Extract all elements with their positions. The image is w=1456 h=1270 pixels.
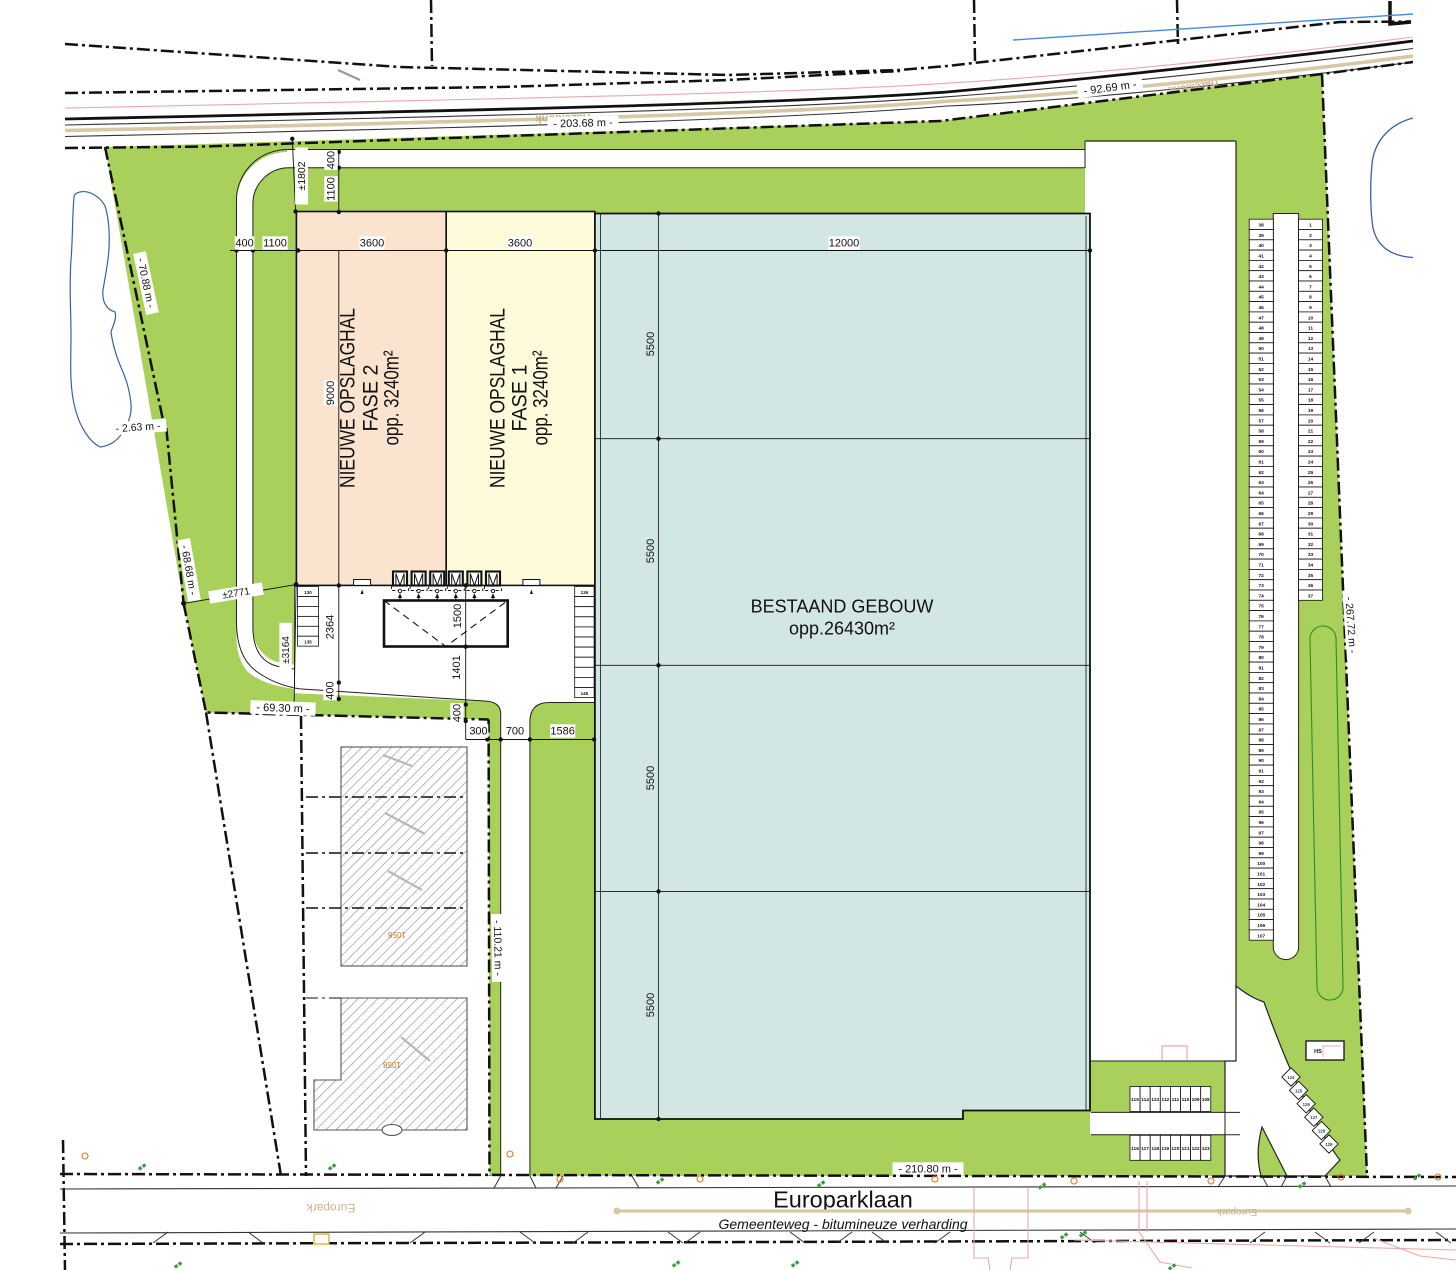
svg-text:85: 85 [1259,707,1265,713]
svg-text:119: 119 [1161,1146,1169,1152]
svg-text:opp.26430m²: opp.26430m² [789,619,895,639]
svg-text:122: 122 [1192,1146,1200,1152]
svg-text:opp. 3240m²: opp. 3240m² [380,351,404,446]
svg-text:33: 33 [1308,552,1314,558]
svg-text:91: 91 [1259,769,1265,775]
svg-text:5500: 5500 [645,332,657,356]
svg-text:48: 48 [1259,326,1265,332]
svg-text:25: 25 [1308,470,1314,476]
svg-text:50: 50 [1259,346,1265,352]
svg-text:21: 21 [1308,429,1314,435]
svg-text:59: 59 [1259,439,1265,445]
svg-text:88: 88 [1259,738,1265,744]
svg-text:125: 125 [1295,1088,1303,1093]
svg-text:135: 135 [304,640,312,645]
svg-text:49: 49 [1259,336,1265,342]
svg-text:7: 7 [1309,284,1312,290]
svg-text:1100: 1100 [263,238,287,250]
svg-text:103: 103 [1257,892,1265,898]
svg-text:77: 77 [1259,624,1265,630]
svg-text:13: 13 [1308,346,1314,352]
svg-text:BESTAAND GEBOUW: BESTAAND GEBOUW [751,597,934,617]
svg-text:16: 16 [1308,377,1314,383]
svg-text:37: 37 [1308,593,1314,599]
svg-text:70: 70 [1259,552,1265,558]
svg-text:27: 27 [1308,490,1314,496]
svg-text:Europarklaan: Europarklaan [773,1187,913,1213]
svg-text:82: 82 [1259,676,1265,682]
svg-text:124: 124 [1287,1075,1295,1080]
svg-text:92: 92 [1259,779,1265,785]
svg-text:107: 107 [1257,933,1265,939]
svg-text:300: 300 [469,726,487,738]
svg-text:96: 96 [1259,820,1265,826]
svg-text:127: 127 [1310,1115,1318,1120]
svg-text:400: 400 [325,681,337,699]
svg-text:26: 26 [1308,480,1314,486]
svg-text:129: 129 [1325,1142,1333,1147]
svg-text:81: 81 [1259,666,1265,672]
svg-text:3600: 3600 [360,238,384,250]
svg-text:121: 121 [1181,1146,1189,1152]
svg-text:8: 8 [1309,295,1312,301]
svg-text:12: 12 [1308,336,1314,342]
svg-text:120: 120 [1171,1146,1179,1152]
svg-text:2364: 2364 [325,615,337,639]
svg-text:5500: 5500 [645,766,657,790]
svg-text:40: 40 [1259,243,1265,249]
svg-text:1058: 1058 [388,930,406,939]
svg-text:78: 78 [1259,635,1265,641]
svg-text:110: 110 [1182,1097,1190,1103]
svg-text:115: 115 [1131,1097,1139,1103]
svg-text:44: 44 [1259,284,1265,290]
svg-text:5: 5 [1309,264,1312,270]
svg-text:opp. 3240m²: opp. 3240m² [529,351,553,446]
svg-text:53: 53 [1259,377,1265,383]
svg-text:63: 63 [1259,480,1265,486]
svg-text:86: 86 [1259,717,1265,723]
svg-text:90: 90 [1259,758,1265,764]
svg-text:51: 51 [1259,357,1265,363]
svg-text:Gemeenteweg - bitumineuze verh: Gemeenteweg - bitumineuze verharding [718,1216,967,1232]
svg-text:136: 136 [581,590,589,595]
svg-text:- 110.21 m -: - 110.21 m - [491,920,504,977]
svg-text:58: 58 [1259,429,1265,435]
svg-text:18: 18 [1308,398,1314,404]
svg-text:95: 95 [1259,810,1265,816]
svg-text:38: 38 [1259,223,1265,229]
svg-text:66: 66 [1259,511,1265,517]
svg-text:17: 17 [1308,387,1314,393]
svg-text:84: 84 [1259,696,1265,702]
svg-text:47: 47 [1259,315,1265,321]
svg-text:41: 41 [1259,254,1265,260]
svg-text:117: 117 [1141,1146,1149,1152]
svg-text:100: 100 [1257,861,1265,867]
svg-text:5500: 5500 [645,539,657,563]
svg-text:105: 105 [1257,913,1265,919]
svg-text:- 210.80 m -: - 210.80 m - [898,1164,958,1176]
svg-text:28: 28 [1308,501,1314,507]
svg-text:87: 87 [1259,727,1265,733]
svg-text:46: 46 [1259,305,1265,311]
svg-text:400: 400 [326,151,338,169]
svg-text:1058: 1058 [383,1060,401,1069]
svg-text:56: 56 [1259,408,1265,414]
svg-text:67: 67 [1259,521,1265,527]
svg-text:HS: HS [1314,1049,1322,1055]
svg-text:130: 130 [304,590,312,595]
svg-text:126: 126 [1303,1102,1311,1107]
svg-text:65: 65 [1259,501,1265,507]
svg-text:Europark: Europark [1216,1206,1258,1217]
svg-text:9000: 9000 [325,381,337,405]
svg-text:104: 104 [1257,902,1265,908]
svg-text:111: 111 [1172,1097,1180,1103]
svg-text:55: 55 [1259,398,1265,404]
svg-text:61: 61 [1259,460,1265,466]
svg-text:101: 101 [1257,872,1265,878]
svg-text:Europark: Europark [306,1201,356,1215]
svg-text:400: 400 [452,704,464,722]
svg-text:99: 99 [1259,851,1265,857]
svg-text:79: 79 [1259,645,1265,651]
svg-text:9: 9 [1309,305,1312,311]
svg-text:±3164: ±3164 [281,636,292,664]
svg-text:30: 30 [1308,521,1314,527]
svg-text:23: 23 [1308,449,1314,455]
svg-text:94: 94 [1259,799,1265,805]
svg-text:±1802: ±1802 [296,161,308,190]
svg-text:76: 76 [1259,614,1265,620]
svg-text:6: 6 [1309,274,1312,280]
svg-text:43: 43 [1259,274,1265,280]
svg-text:74: 74 [1259,593,1265,599]
svg-text:80: 80 [1259,655,1265,661]
svg-text:113: 113 [1151,1097,1159,1103]
svg-text:35: 35 [1308,573,1314,579]
svg-text:93: 93 [1259,789,1265,795]
svg-text:22: 22 [1308,439,1314,445]
svg-text:45: 45 [1259,295,1265,301]
svg-text:54: 54 [1259,387,1265,393]
svg-text:700: 700 [506,726,524,738]
svg-text:64: 64 [1259,490,1265,496]
svg-text:2: 2 [1309,233,1312,239]
svg-text:- 203.68 m -: - 203.68 m - [553,117,613,131]
svg-text:146: 146 [581,691,589,696]
svg-text:72: 72 [1259,573,1265,579]
svg-text:1: 1 [1309,223,1312,229]
svg-text:31: 31 [1308,532,1314,538]
svg-text:57: 57 [1259,418,1265,424]
svg-text:106: 106 [1257,923,1265,929]
svg-text:128: 128 [1318,1129,1326,1134]
svg-text:19: 19 [1308,408,1314,414]
svg-text:42: 42 [1259,264,1265,270]
svg-text:97: 97 [1259,830,1265,836]
svg-text:4: 4 [1309,254,1312,260]
svg-text:68: 68 [1259,532,1265,538]
svg-text:32: 32 [1308,542,1314,548]
svg-text:52: 52 [1259,367,1265,373]
svg-text:108: 108 [1202,1097,1210,1103]
svg-text:NIEUWE OPSLAGHAL: NIEUWE OPSLAGHAL [486,308,510,488]
svg-text:1100: 1100 [326,177,338,201]
svg-text:75: 75 [1259,604,1265,610]
svg-text:89: 89 [1259,748,1265,754]
svg-text:- 69.30 m -: - 69.30 m - [256,702,310,716]
svg-text:73: 73 [1259,583,1265,589]
svg-text:36: 36 [1308,583,1314,589]
svg-text:71: 71 [1259,563,1265,569]
svg-text:112: 112 [1161,1097,1169,1103]
svg-text:123: 123 [1202,1146,1210,1152]
svg-text:1401: 1401 [451,655,463,679]
svg-text:20: 20 [1308,418,1314,424]
svg-text:102: 102 [1257,882,1265,888]
svg-text:114: 114 [1141,1097,1149,1103]
svg-text:11: 11 [1308,326,1313,332]
svg-text:1500: 1500 [452,604,464,628]
svg-text:15: 15 [1308,367,1314,373]
svg-text:62: 62 [1259,470,1265,476]
svg-text:400: 400 [235,238,253,250]
svg-text:116: 116 [1131,1146,1139,1152]
svg-text:39: 39 [1259,233,1265,239]
svg-text:83: 83 [1259,686,1265,692]
svg-text:118: 118 [1151,1146,1159,1152]
svg-text:5500: 5500 [645,993,657,1017]
svg-text:60: 60 [1259,449,1265,455]
svg-text:24: 24 [1308,460,1314,466]
svg-text:1586: 1586 [550,726,574,738]
svg-text:29: 29 [1308,511,1314,517]
svg-text:3600: 3600 [508,238,532,250]
svg-text:69: 69 [1259,542,1265,548]
svg-text:98: 98 [1259,841,1265,847]
svg-text:10: 10 [1308,315,1314,321]
svg-text:34: 34 [1308,563,1314,569]
svg-text:3: 3 [1309,243,1312,249]
svg-text:109: 109 [1192,1097,1200,1103]
svg-text:14: 14 [1308,357,1314,363]
svg-text:12000: 12000 [829,238,860,250]
